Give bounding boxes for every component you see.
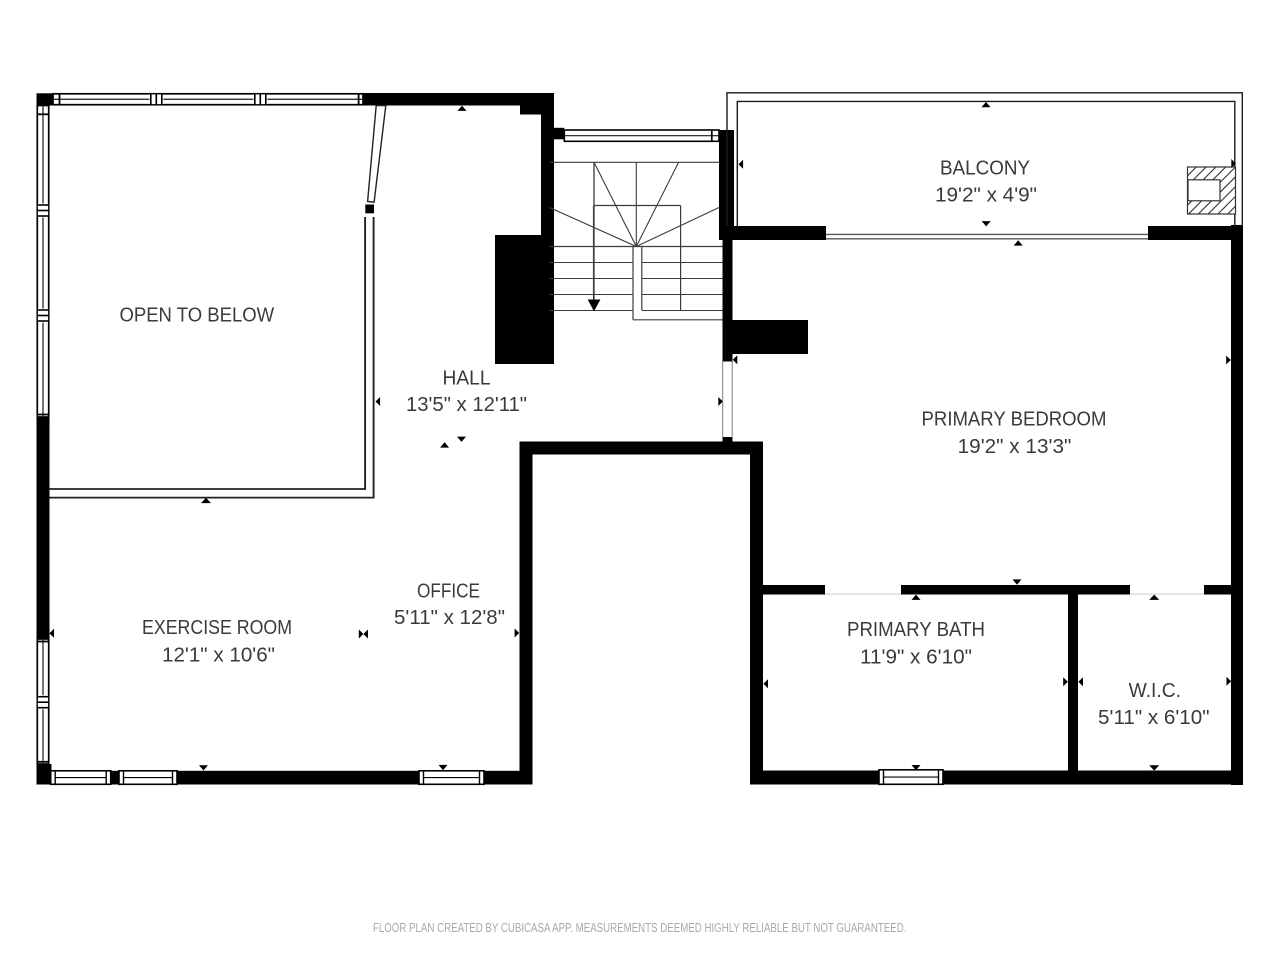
svg-text:5'11" x 12'8": 5'11" x 12'8" bbox=[394, 606, 505, 629]
svg-text:FLOOR PLAN CREATED BY CUBICASA: FLOOR PLAN CREATED BY CUBICASA APP. MEAS… bbox=[373, 920, 907, 935]
svg-text:12'1" x 10'6": 12'1" x 10'6" bbox=[162, 644, 275, 667]
svg-text:19'2" x 4'9": 19'2" x 4'9" bbox=[935, 184, 1037, 207]
svg-text:11'9" x 6'10": 11'9" x 6'10" bbox=[860, 645, 972, 668]
svg-text:BALCONY: BALCONY bbox=[940, 156, 1030, 179]
svg-text:PRIMARY BATH: PRIMARY BATH bbox=[847, 618, 985, 641]
svg-text:HALL: HALL bbox=[443, 367, 491, 390]
svg-text:5'11" x 6'10": 5'11" x 6'10" bbox=[1098, 706, 1210, 729]
svg-text:W.I.C.: W.I.C. bbox=[1129, 679, 1181, 702]
svg-text:EXERCISE ROOM: EXERCISE ROOM bbox=[142, 616, 292, 639]
svg-text:OFFICE: OFFICE bbox=[417, 580, 480, 603]
svg-text:13'5" x 12'11": 13'5" x 12'11" bbox=[406, 393, 527, 416]
svg-text:PRIMARY BEDROOM: PRIMARY BEDROOM bbox=[922, 408, 1107, 431]
svg-text:OPEN TO BELOW: OPEN TO BELOW bbox=[119, 303, 274, 326]
svg-text:19'2" x 13'3": 19'2" x 13'3" bbox=[958, 435, 1072, 458]
